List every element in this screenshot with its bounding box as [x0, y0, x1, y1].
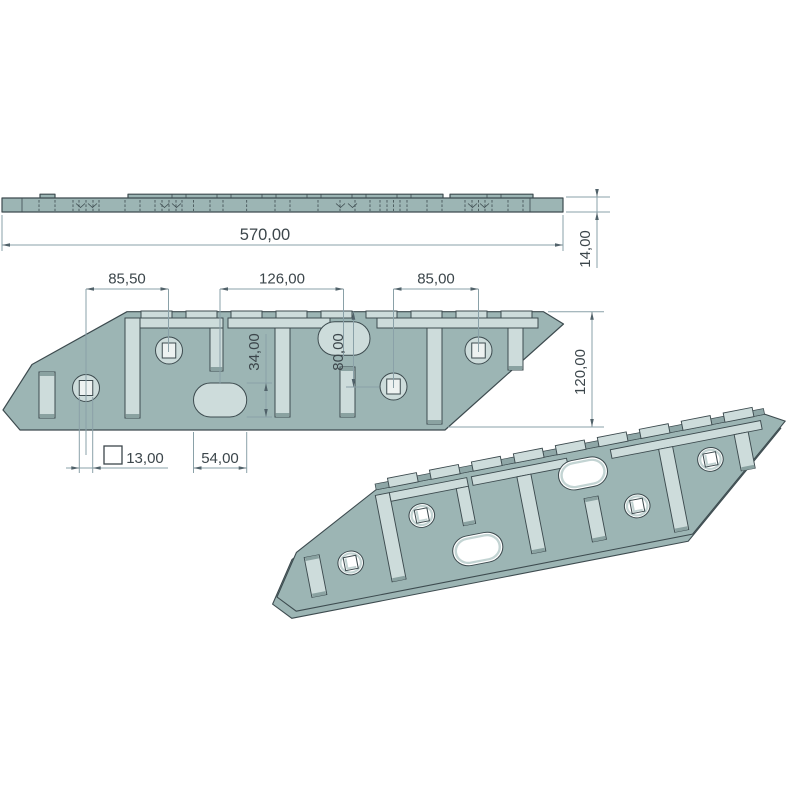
slot-end-shade — [509, 366, 522, 370]
dim-hole-spacing-left: 85,50 — [108, 271, 146, 288]
slot-end-shade — [341, 413, 354, 417]
dim-plate-width: 120,00 — [572, 349, 589, 395]
edge-tab — [186, 311, 217, 318]
slot — [39, 372, 55, 418]
dimension-arrow — [71, 466, 79, 470]
edge-tab — [321, 311, 352, 318]
dimension-arrow — [161, 287, 169, 291]
dim-hole-spacing-right: 85,00 — [417, 271, 455, 288]
dimension-arrow — [239, 466, 247, 470]
dimension-arrow — [590, 419, 594, 427]
technical-drawing: 570,00 14,00 85,50 126,00 85,00 34,00 80… — [0, 0, 800, 800]
groove — [210, 328, 223, 371]
edge-tab — [456, 311, 487, 318]
slot-end-shade — [428, 420, 441, 424]
dim-obround-height: 34,00 — [246, 333, 263, 371]
dimension-arrow — [590, 312, 594, 320]
dim-hole-offset: 80,00 — [330, 333, 347, 371]
slot-end-shade — [276, 413, 289, 417]
groove — [125, 318, 140, 418]
dimension-arrow — [394, 287, 402, 291]
slot-end-shade — [40, 372, 54, 376]
edge-tab — [231, 311, 262, 318]
dimension-arrow — [336, 287, 344, 291]
dim-overall-length: 570,00 — [240, 226, 290, 244]
groove — [377, 318, 538, 328]
groove — [508, 328, 523, 370]
dim-obround-length: 54,00 — [201, 450, 239, 467]
side-profile-view — [2, 194, 563, 212]
dimension-arrow — [595, 189, 599, 197]
slot-end-shade — [126, 414, 139, 418]
edge-tab — [141, 311, 172, 318]
dimension-arrow — [93, 466, 101, 470]
edge-tab — [366, 311, 397, 318]
edge-tab — [501, 311, 532, 318]
slot — [340, 367, 355, 417]
dimension-arrow — [220, 287, 228, 291]
square-hole-symbol — [104, 446, 122, 464]
dim-obround-spacing: 126,00 — [259, 271, 305, 288]
dimension-arrow — [555, 243, 563, 247]
plan-view — [3, 311, 564, 430]
groove — [228, 318, 330, 328]
dimension-arrow — [2, 243, 10, 247]
dim-thickness: 14,00 — [577, 230, 594, 268]
dimension-arrow — [595, 212, 599, 220]
dim-square-hole: 13,00 — [126, 450, 164, 467]
isometric-view — [253, 402, 800, 622]
edge-tab — [411, 311, 442, 318]
obround-slot — [194, 383, 247, 417]
dimension-arrow — [471, 287, 479, 291]
groove — [427, 328, 442, 424]
edge-tab — [276, 311, 307, 318]
groove — [275, 328, 290, 417]
groove — [140, 318, 223, 328]
slot-end-shade — [40, 414, 54, 418]
drawing-page: 570,00 14,00 85,50 126,00 85,00 34,00 80… — [0, 0, 800, 800]
dimension-arrow — [86, 287, 94, 291]
